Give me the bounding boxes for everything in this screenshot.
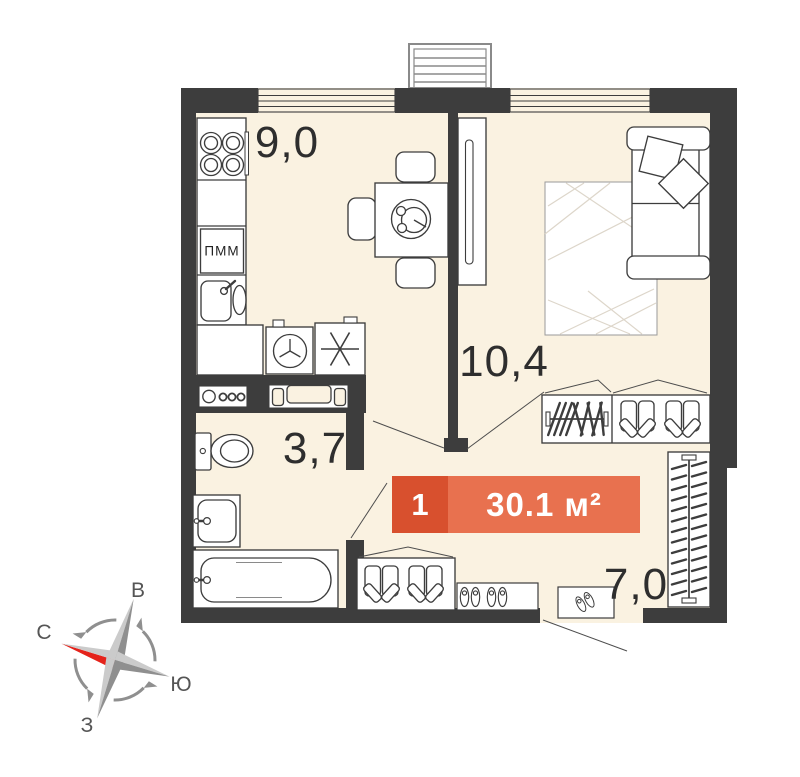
balcony-basket-icon <box>409 44 491 88</box>
toilet-icon <box>195 433 253 470</box>
floorplan-page: 9,0 10,4 3,7 7,0 ПММ 1 30.1 м² С В Ю З <box>0 0 800 777</box>
shoe-rack-icon <box>457 583 538 610</box>
plant-icon <box>392 200 431 239</box>
apartment-area: 30.1 м² <box>448 476 640 533</box>
floorplan-drawing <box>0 0 800 777</box>
kitchen-sink-icon <box>201 281 246 321</box>
chair-icon <box>396 152 435 182</box>
sofa-icon <box>627 127 710 279</box>
bathtub-icon <box>193 550 338 608</box>
bathroom-sink-icon <box>193 495 240 547</box>
apartment-number: 1 <box>392 476 448 533</box>
hall-wardrobe-icon <box>668 452 710 607</box>
compass-north-label: С <box>36 621 51 645</box>
dishwasher-label: ПММ <box>204 244 239 259</box>
fridge-icon <box>315 317 365 375</box>
chair-icon <box>396 258 435 288</box>
bathroom-door-icon <box>269 385 348 408</box>
apartment-badge: 1 30.1 м² <box>392 476 640 533</box>
vent-block-icon <box>199 386 247 407</box>
living-area-label: 10,4 <box>459 337 549 387</box>
hallway-area-label: 7,0 <box>604 560 668 610</box>
compass-rose-icon <box>44 582 189 735</box>
wardrobe-bottom-icon <box>357 558 455 610</box>
wardrobe-top-icon <box>542 395 710 443</box>
compass-south-label: Ю <box>170 673 191 697</box>
bathroom-area-label: 3,7 <box>283 424 347 474</box>
washing-machine-icon <box>266 320 313 374</box>
compass-west-label: З <box>81 714 94 738</box>
compass-east-label: В <box>131 579 145 603</box>
tv-console-icon <box>458 118 486 285</box>
chair-icon <box>348 198 376 240</box>
kitchen-area-label: 9,0 <box>255 118 319 168</box>
